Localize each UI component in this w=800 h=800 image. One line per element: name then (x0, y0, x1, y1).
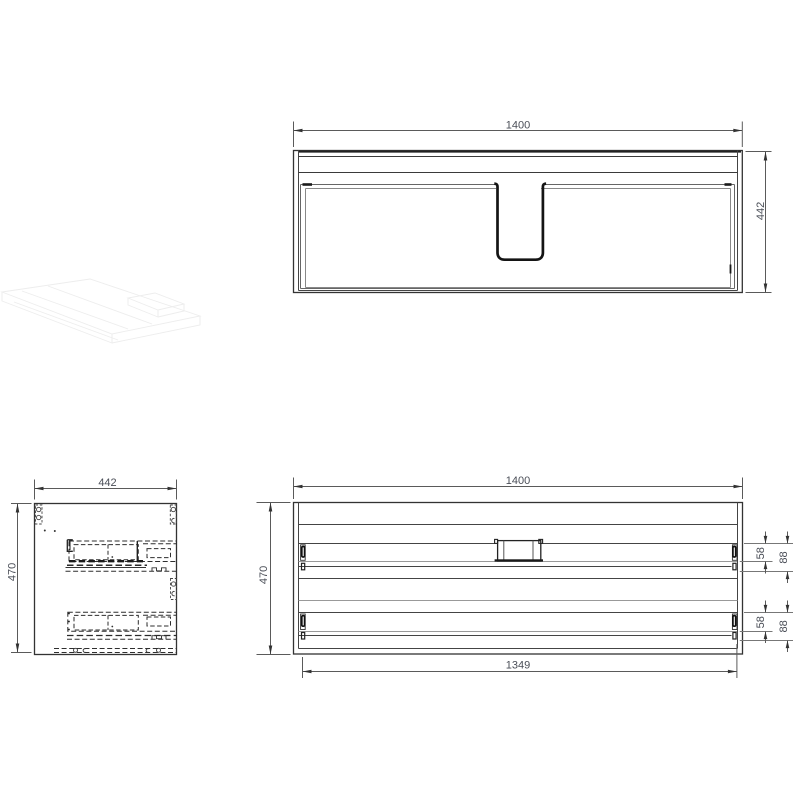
svg-text:88: 88 (778, 551, 790, 563)
svg-text:1400: 1400 (506, 120, 530, 132)
svg-text:58: 58 (755, 547, 767, 559)
svg-text:442: 442 (98, 477, 116, 489)
svg-text:470: 470 (6, 563, 18, 581)
svg-text:442: 442 (755, 202, 767, 220)
svg-text:1349: 1349 (506, 660, 530, 672)
svg-text:58: 58 (755, 616, 767, 628)
svg-text:470: 470 (258, 566, 270, 584)
svg-text:88: 88 (778, 620, 790, 632)
svg-text:1400: 1400 (506, 475, 530, 487)
